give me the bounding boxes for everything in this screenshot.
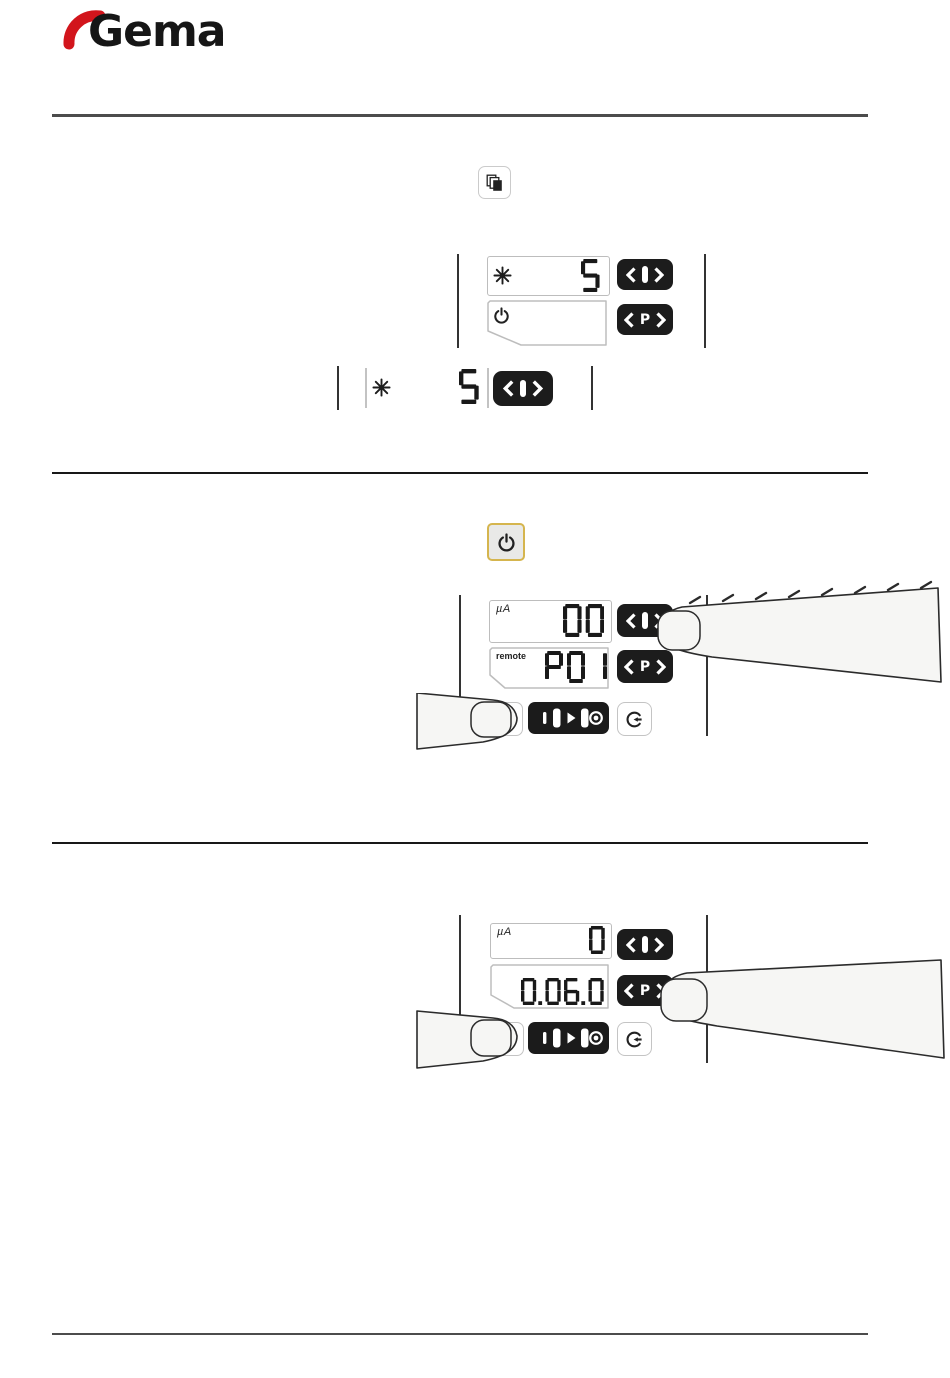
mode-strip-icons: [534, 1025, 604, 1051]
pressing-finger-left: [413, 1010, 525, 1074]
mode-strip-button: [528, 702, 609, 734]
star-icon: [493, 266, 512, 285]
chevron-left-icon: [624, 312, 634, 328]
display-value: [459, 369, 479, 409]
mode-strip-button: [528, 1022, 609, 1054]
section-rule: [52, 842, 868, 844]
unit-label: µA: [497, 926, 512, 938]
current-display-value: [563, 604, 604, 642]
chevron-right-icon: [654, 267, 664, 283]
cycle-button: [617, 702, 652, 736]
value-bar-icon: [642, 266, 648, 283]
remote-label: remote: [496, 651, 526, 661]
figure-right-line: [704, 254, 706, 348]
section-rule: [52, 472, 868, 474]
power-icon: [493, 307, 510, 324]
program-key-button: P: [617, 304, 673, 335]
chevron-left-icon: [626, 267, 636, 283]
star-icon: [372, 378, 391, 397]
figure-left-line: [457, 254, 459, 348]
value-bar-icon: [520, 380, 526, 397]
program-key-label: P: [640, 313, 650, 327]
display-edge-line: [487, 368, 489, 408]
header-rule: [52, 114, 868, 117]
parameter-display-value: [521, 978, 604, 1010]
manual-page: Gema: [0, 0, 950, 1378]
copies-button: [478, 166, 511, 199]
figure-right-line: [591, 366, 593, 410]
pointing-hand-right: [632, 578, 950, 696]
value-key-button: [617, 259, 673, 290]
arc-arrow-icon: [625, 710, 644, 729]
power-button-callout: [487, 523, 525, 561]
chevron-right-icon: [656, 312, 666, 328]
mode-strip-icons: [534, 705, 604, 731]
brand-name: Gema: [88, 6, 226, 57]
figure-left-line: [337, 366, 339, 410]
program-display-value: [545, 651, 607, 688]
chevron-left-icon: [624, 983, 634, 999]
pressing-finger-left: [413, 693, 525, 755]
stacked-pages-icon: [486, 174, 504, 192]
gema-logo: Gema: [54, 4, 254, 66]
chevron-left-icon: [503, 380, 514, 397]
display-edge-line: [365, 368, 367, 408]
pointing-hand-right: [635, 948, 950, 1073]
value-key-button: [493, 371, 553, 406]
footer-rule: [52, 1333, 868, 1335]
display-value: [581, 259, 600, 297]
power-icon: [497, 533, 516, 552]
unit-label: µA: [496, 603, 511, 615]
chevron-right-icon: [532, 380, 543, 397]
current-display-value: [589, 926, 605, 959]
